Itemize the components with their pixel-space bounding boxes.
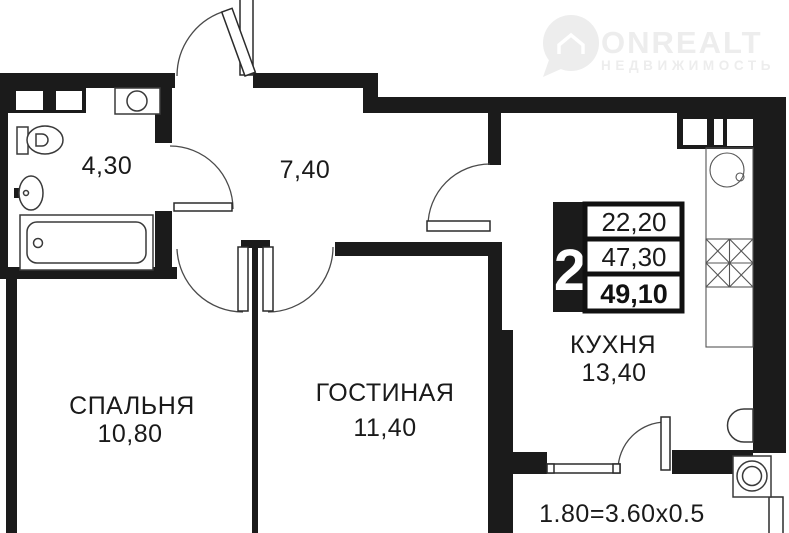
kitchen-area-label: 13,40 — [581, 359, 646, 387]
living-name-label: ГОСТИНАЯ — [316, 379, 455, 407]
area-value-1: 22,20 — [601, 207, 666, 237]
balcony-rail — [769, 497, 783, 533]
logo-subtitle: НЕДВИЖИМОСТЬ — [601, 58, 775, 73]
area-value-2: 47,30 — [601, 242, 666, 272]
bathroom-area-label: 4,30 — [82, 152, 133, 180]
washing-machine-icon — [115, 88, 160, 114]
logo: ONREALT НЕДВИЖИМОСТЬ — [543, 15, 775, 77]
living-area-label: 11,40 — [353, 414, 416, 442]
floor-plan: ONREALT НЕДВИЖИМОСТЬ — [0, 0, 789, 533]
stove-icon — [706, 239, 753, 287]
hall-area-label: 7,40 — [280, 156, 331, 184]
kitchen-name-label: КУХНЯ — [570, 331, 656, 359]
boiler-icon — [728, 409, 753, 442]
balcony-formula-label: 1.80=3.60x0.5 — [539, 500, 705, 528]
rooms-count: 2 — [554, 238, 586, 303]
washing-machine-balcony-icon — [733, 456, 771, 497]
area-value-total: 49,10 — [600, 279, 668, 309]
toilet-icon — [17, 126, 63, 154]
floor-plan-svg: ONREALT НЕДВИЖИМОСТЬ — [0, 0, 789, 533]
bedroom-area-label: 10,80 — [97, 420, 162, 448]
bedroom-name-label: СПАЛЬНЯ — [69, 392, 195, 420]
bathtub-icon — [20, 215, 153, 270]
logo-pin-icon — [543, 15, 599, 77]
logo-title: ONREALT — [601, 25, 763, 60]
summary-box: 2 22,20 47,30 49,10 — [553, 202, 682, 312]
